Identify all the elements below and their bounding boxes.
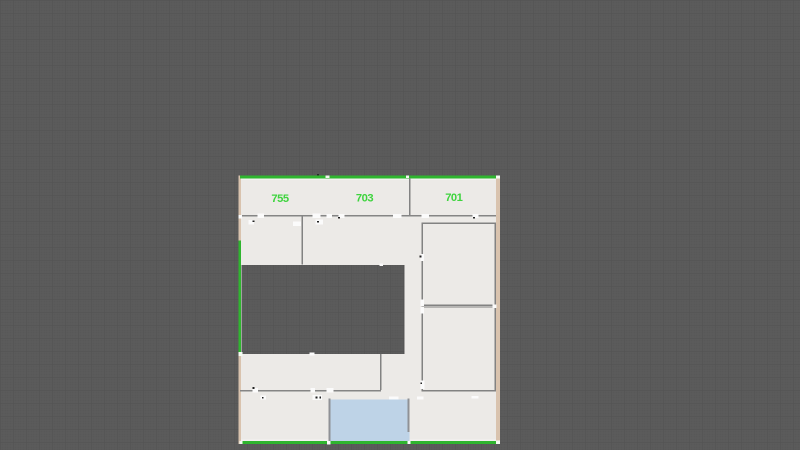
svg-text:701: 701 [445, 192, 462, 204]
svg-text:703: 703 [356, 193, 373, 205]
svg-text:755: 755 [271, 193, 288, 205]
